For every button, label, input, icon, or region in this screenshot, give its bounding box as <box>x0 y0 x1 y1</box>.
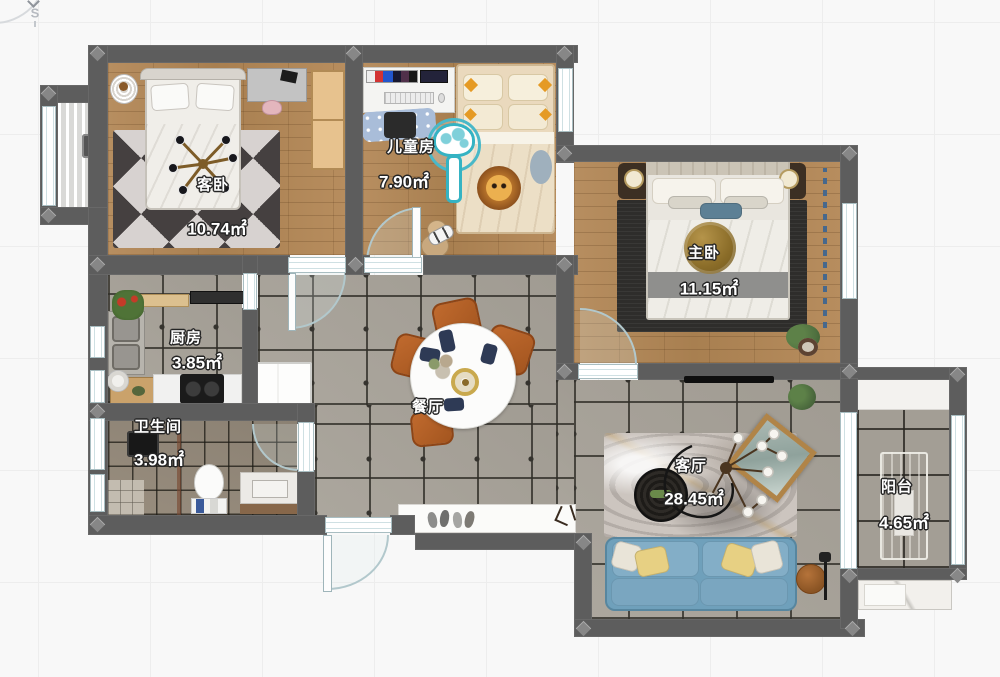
kids-chair-seat <box>384 112 416 138</box>
wall <box>88 45 578 63</box>
wall <box>840 378 858 414</box>
wall <box>556 255 574 380</box>
wall <box>415 533 592 550</box>
wall <box>88 403 315 421</box>
balcony-platform-box <box>864 584 906 606</box>
vanity-basin <box>252 480 288 498</box>
guest-desk-chair[interactable] <box>262 100 282 115</box>
room-area-balcony: 4.65㎡ <box>879 509 929 534</box>
room-label-bathroom: 卫生间 <box>134 416 182 437</box>
sofa-seat-cushion <box>700 578 788 606</box>
shoe-cabinet[interactable] <box>398 504 576 533</box>
room-label-dining: 餐厅 <box>412 396 444 417</box>
compass <box>0 0 48 24</box>
compass-tick <box>34 21 36 27</box>
room-label-kids: 儿童房 <box>387 136 435 157</box>
window[interactable] <box>90 474 105 512</box>
kitchen-sink-lower <box>112 344 140 370</box>
range-hood[interactable] <box>190 291 246 304</box>
toilet-bowl[interactable] <box>194 464 224 500</box>
window[interactable] <box>90 418 105 470</box>
room-area-kitchen: 3.85㎡ <box>172 349 222 374</box>
kids-mouse <box>438 93 445 103</box>
kitchen-sliding-door[interactable] <box>243 273 257 310</box>
plush-gray <box>530 150 552 184</box>
balcony-sill <box>858 380 949 410</box>
wall <box>297 403 315 424</box>
master-headboard <box>646 162 790 175</box>
guest-pillow-left <box>150 83 190 112</box>
pendant-center-dot <box>462 379 469 386</box>
kitchen-pot <box>107 370 129 392</box>
master-lamp-left <box>624 169 644 189</box>
mushroom-rug-cap <box>433 123 475 157</box>
wall <box>242 308 258 405</box>
tv[interactable] <box>684 376 774 383</box>
guest-bed-headboard <box>140 68 246 80</box>
guest-nightstand-cup <box>119 82 128 91</box>
guest-desk[interactable] <box>247 68 307 102</box>
guest-pillow-right <box>195 83 235 112</box>
door-threshold <box>288 257 346 273</box>
wall <box>556 145 858 162</box>
door-threshold <box>298 422 314 472</box>
room-area-master: 11.15㎡ <box>680 275 739 300</box>
wall <box>242 255 258 275</box>
room-label-guest: 客卧 <box>197 174 229 195</box>
guest-bedroom-door-leaf <box>288 273 296 331</box>
guest-wardrobe[interactable] <box>311 70 345 170</box>
shower-pad <box>108 480 144 515</box>
wall <box>423 255 578 275</box>
vanity-base <box>240 504 300 514</box>
window[interactable] <box>842 203 857 299</box>
room-label-living: 客厅 <box>675 455 707 476</box>
window[interactable] <box>90 326 105 358</box>
wall <box>840 367 967 380</box>
entry-threshold <box>325 517 392 533</box>
room-label-kitchen: 厨房 <box>170 327 202 348</box>
room-label-master: 主卧 <box>688 242 720 263</box>
kids-monitor <box>420 70 448 83</box>
wall <box>345 45 363 275</box>
toilet-tank <box>191 498 227 514</box>
room-area-living: 28.45㎡ <box>664 485 724 510</box>
entry-door-leaf <box>323 535 332 592</box>
wall <box>88 255 290 275</box>
floor-lamp-head <box>819 552 831 562</box>
compass-south-label: S <box>31 6 40 21</box>
floor-lamp-pole[interactable] <box>824 556 827 600</box>
wall <box>848 568 967 580</box>
bead-curtain <box>823 168 827 328</box>
living-plant[interactable] <box>788 384 816 410</box>
sofa-seat-cushion <box>611 578 699 606</box>
kitchen-plant[interactable] <box>112 290 144 320</box>
kids-bookshelf <box>366 70 418 83</box>
door-threshold <box>578 364 638 379</box>
kids-room-door-leaf <box>412 207 421 263</box>
master-plant-pot <box>798 338 818 356</box>
window[interactable] <box>558 68 573 132</box>
mushroom-rug-stem <box>446 155 462 203</box>
chair-cushion <box>444 397 465 411</box>
room-area-kids: 7.90㎡ <box>379 168 429 193</box>
window[interactable] <box>951 415 965 565</box>
wall <box>88 207 108 518</box>
master-pillow-blue <box>700 203 742 219</box>
wall <box>88 515 327 535</box>
balcony-sliding-door[interactable] <box>840 412 857 569</box>
entry-door[interactable] <box>327 535 389 590</box>
wall <box>88 45 108 215</box>
lion-plush-face <box>486 175 512 201</box>
floorplan-canvas: S <box>0 0 1000 677</box>
wall <box>574 619 865 637</box>
room-area-bathroom: 3.98㎡ <box>134 446 184 471</box>
window[interactable] <box>90 370 105 403</box>
living-decor-branches[interactable] <box>650 426 802 536</box>
kids-keyboard <box>384 92 434 104</box>
wall <box>390 515 415 535</box>
door-threshold <box>364 257 422 273</box>
window[interactable] <box>42 106 56 206</box>
room-label-balcony: 阳台 <box>881 476 913 497</box>
turtle-decor <box>132 386 145 396</box>
cooktop[interactable] <box>180 374 224 404</box>
side-stool[interactable] <box>796 564 826 594</box>
room-area-guest: 10.74㎡ <box>187 215 247 240</box>
wall <box>297 470 315 518</box>
